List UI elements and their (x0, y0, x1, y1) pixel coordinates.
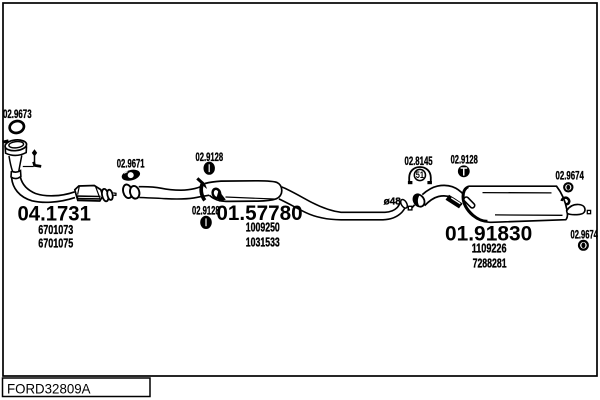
svg-text:1109226: 1109226 (472, 242, 507, 256)
svg-text:ø48: ø48 (384, 196, 401, 208)
svg-text:02.8145: 02.8145 (405, 156, 434, 168)
svg-text:02.9671: 02.9671 (117, 158, 145, 170)
svg-text:FORD32809A: FORD32809A (7, 381, 91, 397)
svg-text:51: 51 (416, 170, 424, 180)
svg-text:02.9673: 02.9673 (3, 109, 32, 121)
svg-text:02.9128: 02.9128 (196, 152, 224, 164)
svg-text:6701073: 6701073 (38, 223, 73, 237)
svg-text:7288281: 7288281 (473, 256, 507, 270)
svg-text:04.1731: 04.1731 (18, 202, 92, 225)
svg-text:02.9674: 02.9674 (571, 229, 599, 241)
svg-text:6701075: 6701075 (38, 237, 73, 251)
svg-text:02.9674: 02.9674 (556, 170, 585, 182)
svg-text:02.9128: 02.9128 (451, 154, 479, 166)
svg-text:1031533: 1031533 (246, 235, 280, 249)
svg-text:1009250: 1009250 (246, 221, 280, 235)
